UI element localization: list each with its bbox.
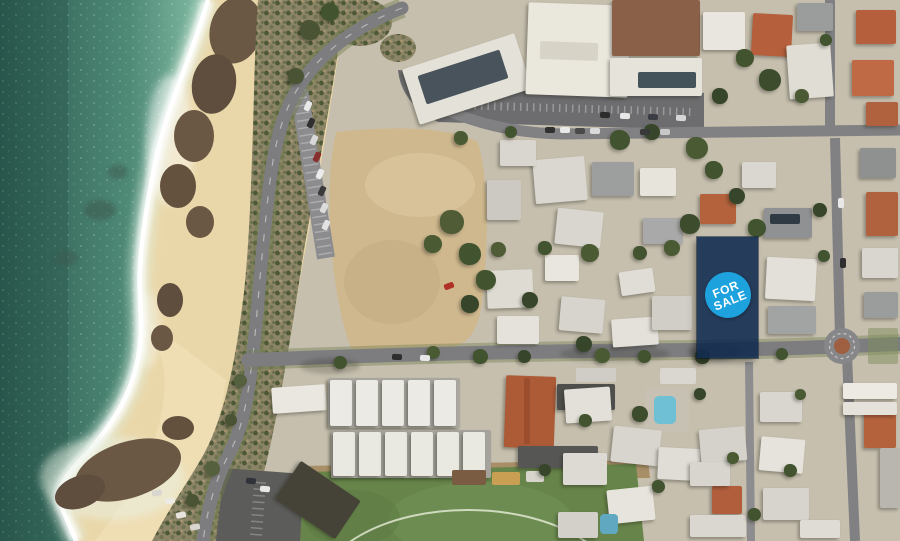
car — [303, 100, 313, 112]
car — [306, 117, 316, 129]
car — [321, 219, 331, 231]
car — [840, 258, 846, 268]
car — [660, 129, 670, 135]
car — [315, 168, 325, 180]
car — [260, 486, 270, 493]
car — [545, 127, 555, 133]
car — [190, 523, 201, 531]
car — [600, 112, 610, 118]
aerial-map: FOR SALE — [0, 0, 900, 541]
car — [319, 202, 329, 214]
car — [676, 115, 686, 121]
cars-layer — [0, 0, 900, 541]
car — [420, 355, 430, 361]
car — [309, 134, 319, 146]
car — [620, 113, 630, 119]
car — [560, 127, 570, 133]
car — [640, 129, 650, 135]
car — [648, 114, 658, 120]
car — [392, 354, 402, 360]
car — [317, 185, 327, 197]
car — [176, 511, 187, 519]
car — [838, 198, 844, 208]
car — [246, 478, 256, 485]
car — [165, 497, 176, 505]
car — [575, 128, 585, 134]
car — [443, 281, 454, 290]
car — [590, 128, 600, 134]
car — [312, 151, 322, 163]
car — [152, 489, 163, 497]
